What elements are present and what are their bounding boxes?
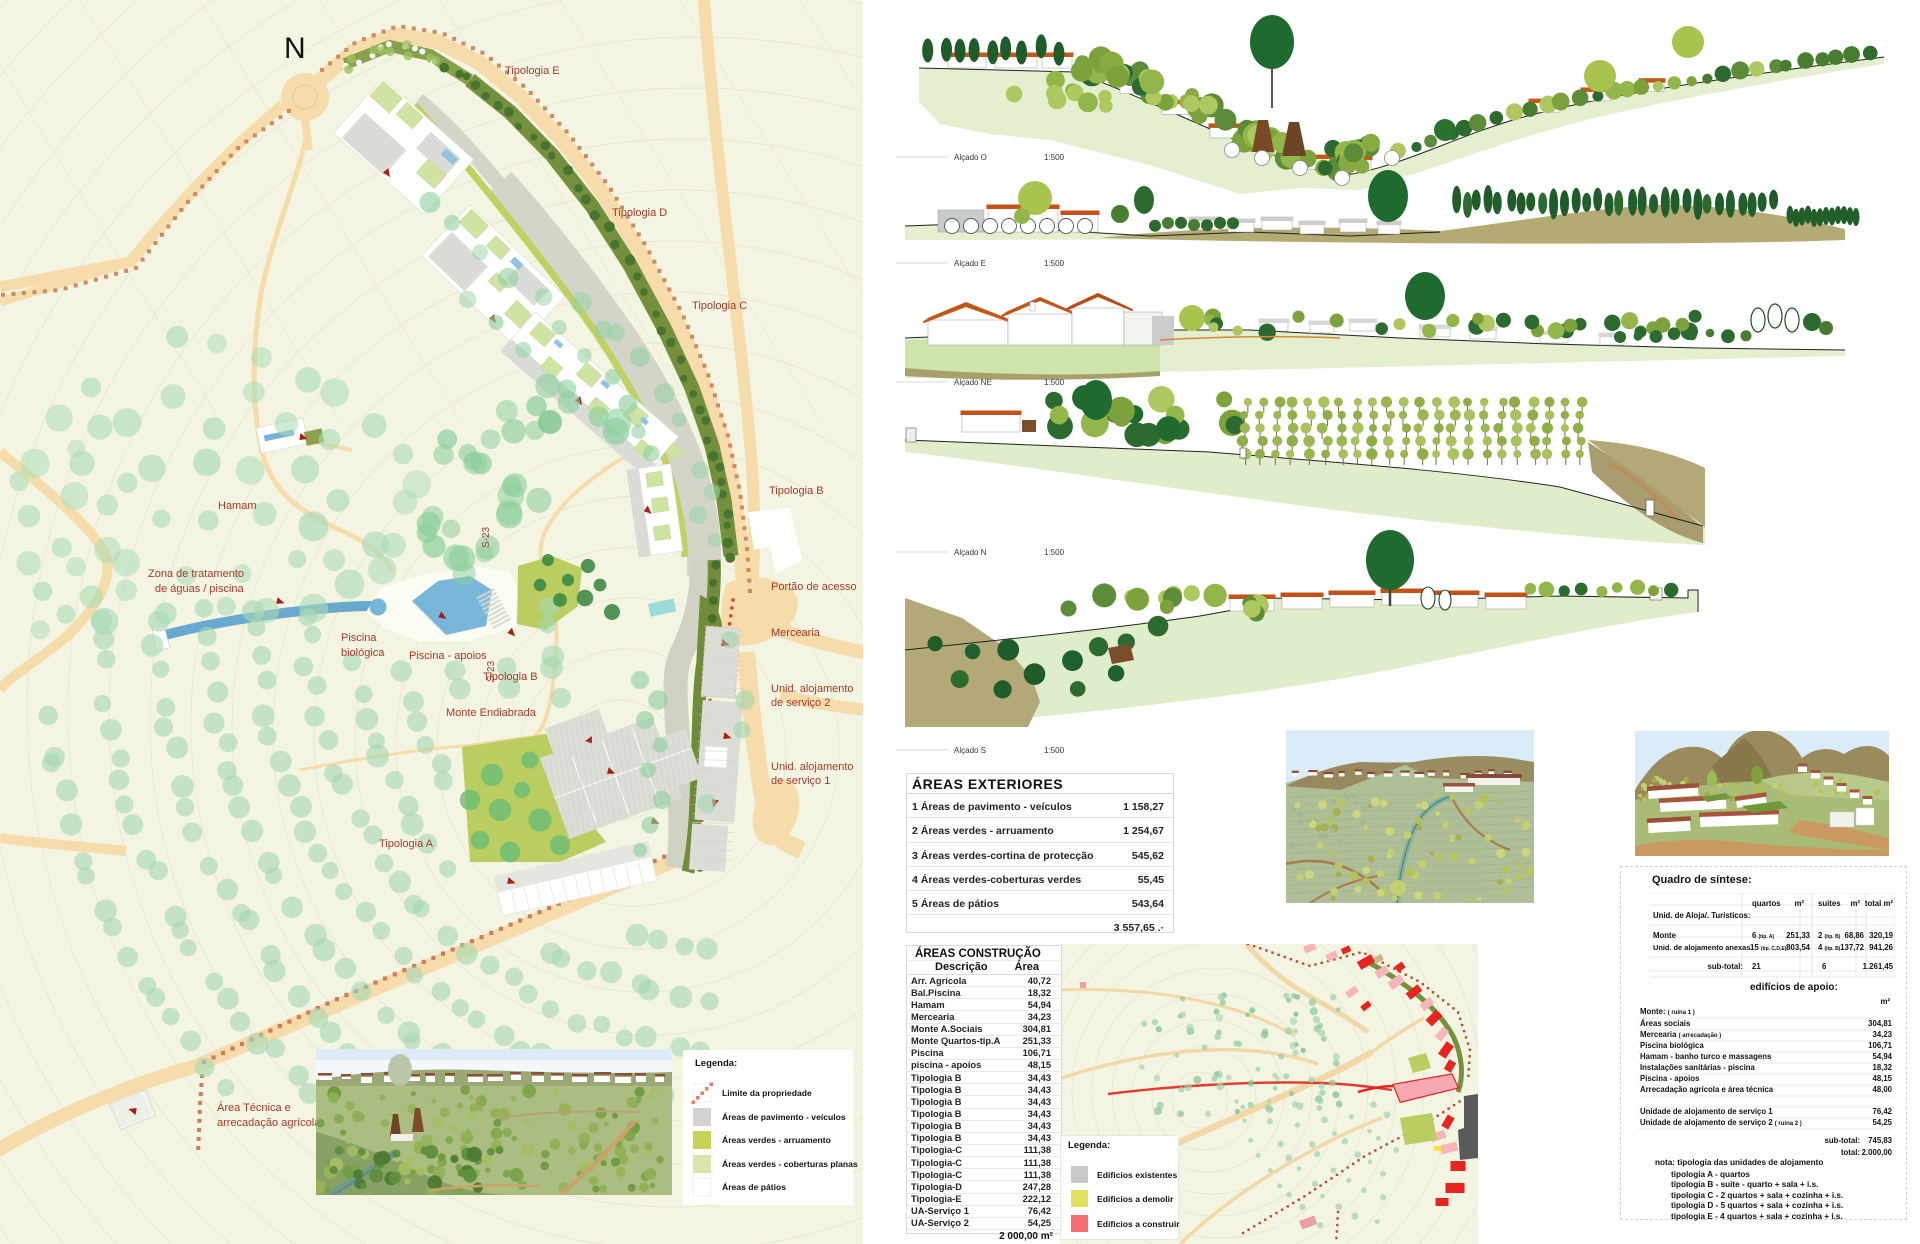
svg-text:1:500: 1:500	[1044, 378, 1065, 387]
svg-text:1:500: 1:500	[1044, 259, 1065, 268]
svg-text:Alçado S: Alçado S	[954, 746, 986, 755]
svg-text:Alçado N: Alçado N	[954, 548, 987, 557]
svg-text:Alçado NE: Alçado NE	[954, 378, 992, 387]
svg-text:Alçado O: Alçado O	[954, 153, 987, 162]
svg-text:1:500: 1:500	[1044, 548, 1065, 557]
svg-text:1:500: 1:500	[1044, 153, 1065, 162]
svg-text:Alçado E: Alçado E	[954, 259, 986, 268]
svg-text:1:500: 1:500	[1044, 746, 1065, 755]
